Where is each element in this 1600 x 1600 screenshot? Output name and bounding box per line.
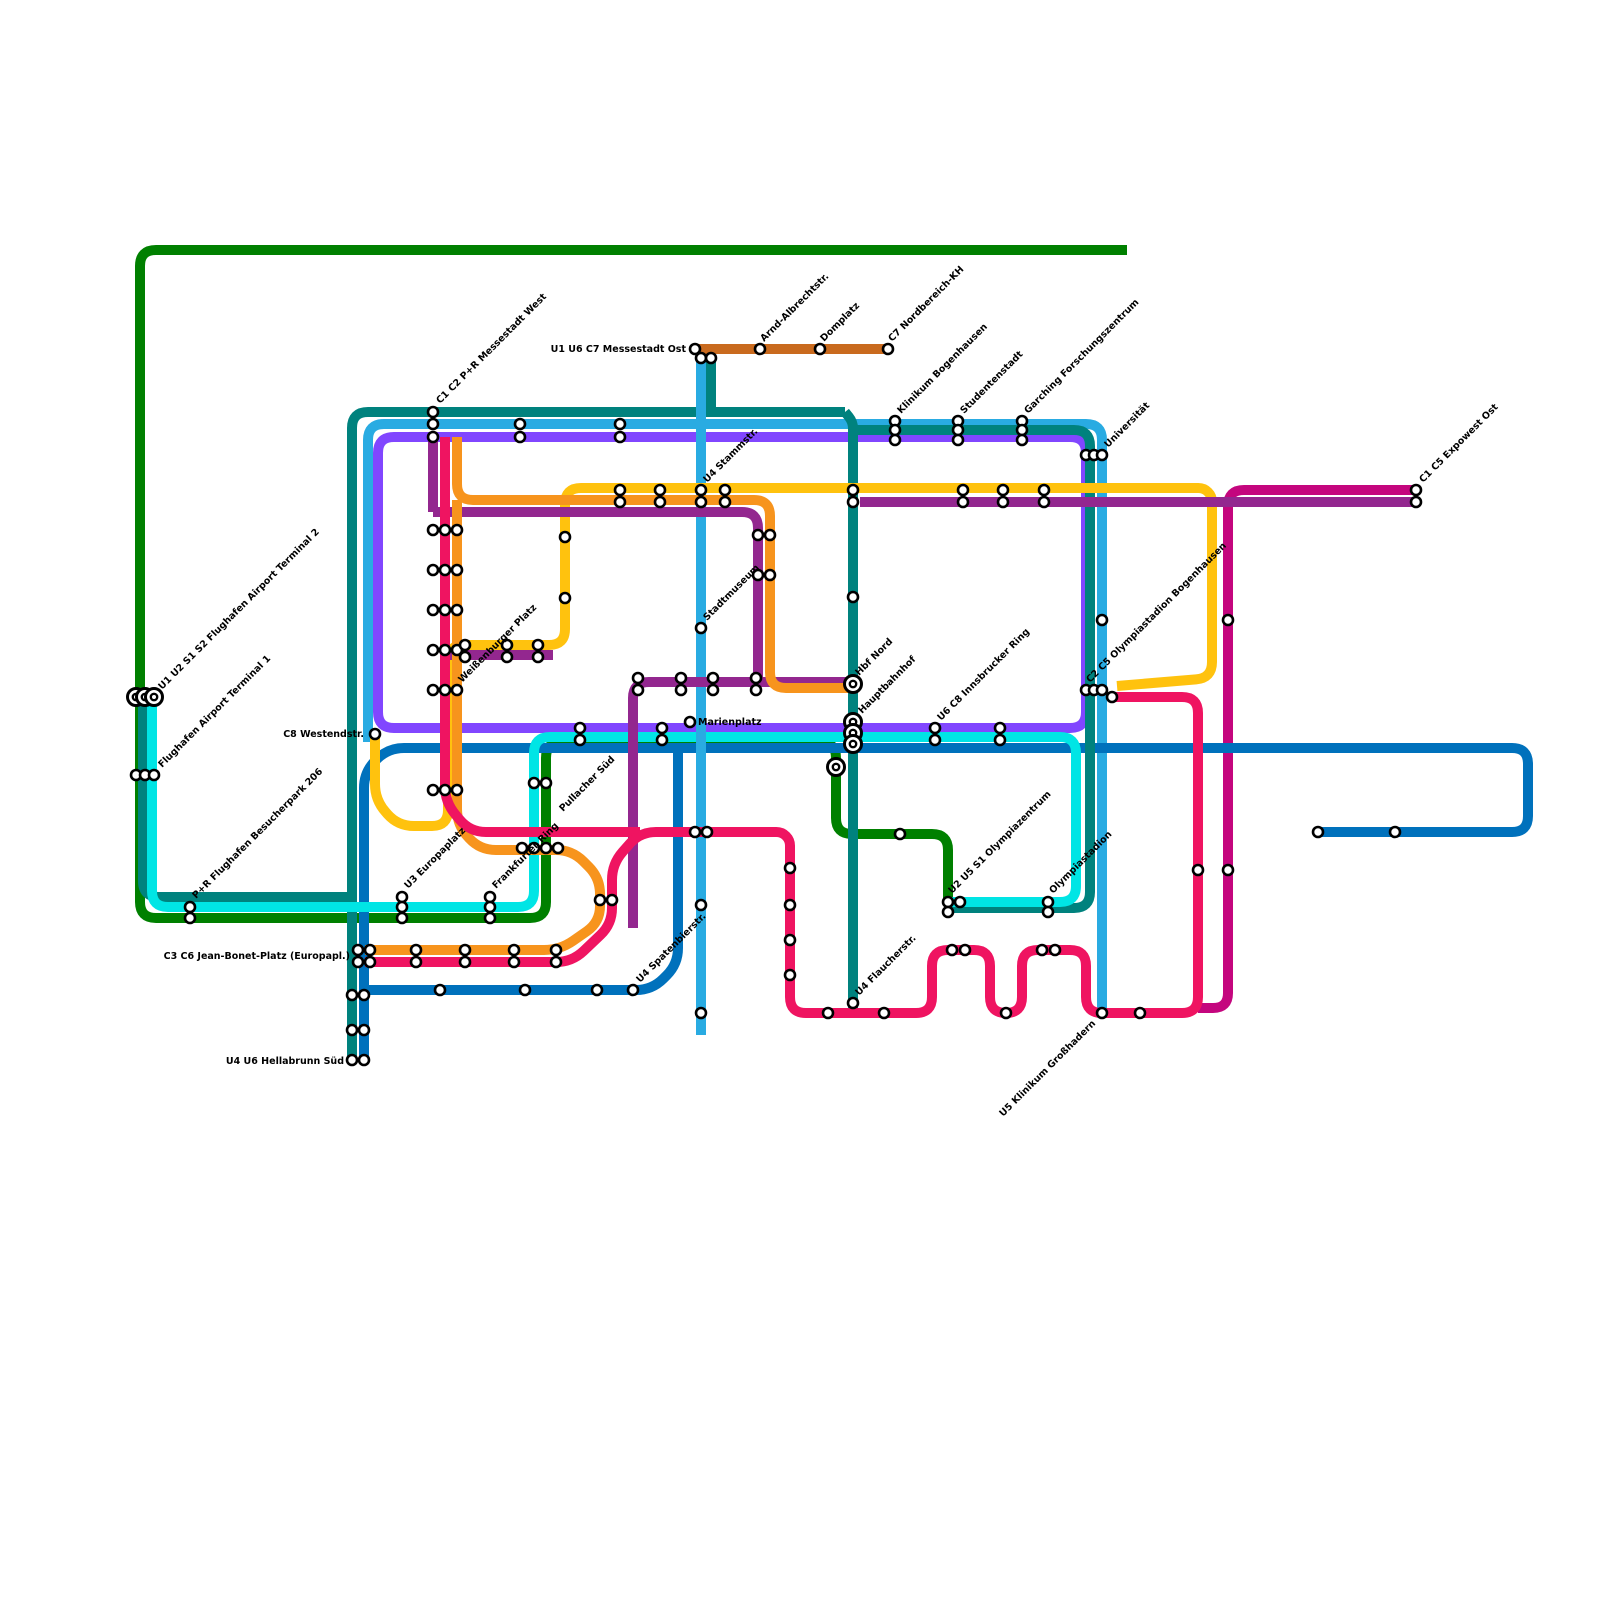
- station-marker: [1313, 827, 1323, 837]
- station-marker: [1039, 497, 1049, 507]
- station-marker: [460, 640, 470, 650]
- station-marker: [428, 645, 438, 655]
- station-marker: [1107, 692, 1117, 702]
- station-marker: [592, 985, 602, 995]
- station-marker: [708, 673, 718, 683]
- station-marker: [995, 723, 1005, 733]
- station-marker: [696, 497, 706, 507]
- station-marker: [397, 892, 407, 902]
- station-marker: [943, 897, 953, 907]
- station-marker: [848, 592, 858, 602]
- station-marker: [485, 892, 495, 902]
- station-marker: [365, 945, 375, 955]
- station-marker: [541, 778, 551, 788]
- station-marker: [575, 723, 585, 733]
- station-marker: [515, 419, 525, 429]
- transit-map: U1 U6 C7 Messestadt OstArnd-Albrechtstr.…: [0, 0, 1600, 1600]
- station-marker: [428, 419, 438, 429]
- station-marker: [1017, 425, 1027, 435]
- station-marker: [958, 497, 968, 507]
- interchange-marker: [828, 759, 845, 776]
- station-marker: [185, 902, 195, 912]
- station-marker: [452, 685, 462, 695]
- station-marker: [696, 1008, 706, 1018]
- station-marker: [1223, 865, 1233, 875]
- station-marker: [751, 673, 761, 683]
- station-marker: [440, 685, 450, 695]
- station-marker: [452, 565, 462, 575]
- station-marker: [1037, 945, 1047, 955]
- station-marker: [502, 652, 512, 662]
- station-label: C3 C6 Jean-Bonet-Platz (Europapl.): [164, 951, 350, 962]
- station-marker: [353, 957, 363, 967]
- station-marker: [1390, 827, 1400, 837]
- station-marker: [460, 957, 470, 967]
- station-marker: [440, 645, 450, 655]
- station-marker: [657, 723, 667, 733]
- station-marker: [370, 729, 380, 739]
- station-marker: [365, 957, 375, 967]
- station-marker: [428, 785, 438, 795]
- station-marker: [1039, 485, 1049, 495]
- station-marker: [823, 1008, 833, 1018]
- station-marker: [706, 353, 716, 363]
- station-marker: [452, 605, 462, 615]
- station-marker: [553, 843, 563, 853]
- station-marker: [696, 900, 706, 910]
- station-marker: [347, 990, 357, 1000]
- station-marker: [359, 1055, 369, 1065]
- transit-map-canvas: U1 U6 C7 Messestadt OstArnd-Albrechtstr.…: [0, 0, 1600, 1600]
- station-marker: [595, 895, 605, 905]
- station-marker: [509, 957, 519, 967]
- station-marker: [815, 344, 825, 354]
- station-marker: [696, 485, 706, 495]
- station-marker: [440, 785, 450, 795]
- station-marker: [890, 425, 900, 435]
- station-marker: [1043, 897, 1053, 907]
- station-marker: [1097, 1008, 1107, 1018]
- station-marker: [1193, 865, 1203, 875]
- station-marker: [785, 970, 795, 980]
- station-marker: [607, 895, 617, 905]
- station-marker: [690, 827, 700, 837]
- station-marker: [676, 673, 686, 683]
- station-marker: [998, 485, 1008, 495]
- station-marker: [696, 623, 706, 633]
- station-marker: [428, 565, 438, 575]
- station-marker: [560, 593, 570, 603]
- station-marker: [485, 913, 495, 923]
- station-marker: [785, 935, 795, 945]
- map-background: [0, 0, 1600, 1600]
- station-marker: [575, 735, 585, 745]
- station-marker: [751, 685, 761, 695]
- station-marker: [755, 344, 765, 354]
- station-marker: [953, 425, 963, 435]
- station-marker: [628, 985, 638, 995]
- station-marker: [347, 1025, 357, 1035]
- station-marker: [440, 525, 450, 535]
- station-marker: [615, 419, 625, 429]
- station-marker: [953, 435, 963, 445]
- station-marker: [765, 570, 775, 580]
- interchange-marker: [146, 689, 163, 706]
- station-marker: [1411, 497, 1421, 507]
- station-marker: [655, 497, 665, 507]
- station-marker: [676, 685, 686, 695]
- station-marker: [633, 685, 643, 695]
- station-marker: [533, 652, 543, 662]
- station-marker: [411, 945, 421, 955]
- station-marker: [485, 902, 495, 912]
- station-marker: [452, 785, 462, 795]
- station-marker: [529, 778, 539, 788]
- interchange-marker: [845, 676, 862, 693]
- station-marker: [520, 985, 530, 995]
- station-marker: [655, 485, 665, 495]
- station-marker: [428, 605, 438, 615]
- station-marker: [1050, 945, 1060, 955]
- station-marker: [1017, 435, 1027, 445]
- station-marker: [955, 897, 965, 907]
- interchange-marker: [845, 736, 862, 753]
- station-marker: [452, 525, 462, 535]
- station-marker: [1097, 685, 1107, 695]
- station-marker: [533, 640, 543, 650]
- station-marker: [998, 497, 1008, 507]
- station-marker: [1001, 1008, 1011, 1018]
- station-marker: [696, 353, 706, 363]
- station-marker: [930, 723, 940, 733]
- station-label: U1 U6 C7 Messestadt Ost: [551, 344, 687, 355]
- station-marker: [943, 907, 953, 917]
- station-marker: [1223, 615, 1233, 625]
- station-marker: [879, 1008, 889, 1018]
- station-marker: [440, 605, 450, 615]
- station-marker: [765, 530, 775, 540]
- station-marker: [702, 827, 712, 837]
- station-marker: [353, 945, 363, 955]
- station-marker: [720, 485, 730, 495]
- station-marker: [347, 1055, 357, 1065]
- station-marker: [1097, 615, 1107, 625]
- station-marker: [440, 565, 450, 575]
- station-marker: [785, 863, 795, 873]
- station-marker: [411, 957, 421, 967]
- station-marker: [428, 525, 438, 535]
- station-marker: [708, 685, 718, 695]
- station-marker: [848, 485, 858, 495]
- station-marker: [995, 735, 1005, 745]
- station-marker: [560, 532, 570, 542]
- station-marker: [753, 530, 763, 540]
- station-marker: [428, 685, 438, 695]
- station-marker: [720, 497, 730, 507]
- station-label: Marienplatz: [698, 717, 762, 728]
- station-marker: [359, 1025, 369, 1035]
- station-marker: [1097, 450, 1107, 460]
- station-marker: [428, 407, 438, 417]
- station-marker: [657, 735, 667, 745]
- station-marker: [848, 497, 858, 507]
- station-marker: [428, 432, 438, 442]
- station-marker: [615, 432, 625, 442]
- station-marker: [1411, 485, 1421, 495]
- station-marker: [890, 435, 900, 445]
- station-marker: [397, 902, 407, 912]
- station-marker: [149, 770, 159, 780]
- station-marker: [947, 945, 957, 955]
- station-marker: [895, 829, 905, 839]
- station-marker: [551, 957, 561, 967]
- station-marker: [460, 652, 470, 662]
- station-marker: [359, 990, 369, 1000]
- station-marker: [509, 945, 519, 955]
- station-marker: [185, 913, 195, 923]
- station-marker: [1135, 1008, 1145, 1018]
- station-marker: [551, 945, 561, 955]
- station-marker: [633, 673, 643, 683]
- station-marker: [615, 485, 625, 495]
- station-marker: [883, 344, 893, 354]
- station-marker: [685, 717, 695, 727]
- station-marker: [460, 945, 470, 955]
- station-marker: [930, 735, 940, 745]
- station-marker: [848, 998, 858, 1008]
- station-label: C8 Westendstr.: [283, 729, 364, 740]
- station-label: U4 U6 Hellabrunn Süd: [226, 1056, 344, 1067]
- station-marker: [435, 985, 445, 995]
- station-marker: [1043, 907, 1053, 917]
- station-marker: [615, 497, 625, 507]
- station-marker: [960, 945, 970, 955]
- station-marker: [785, 900, 795, 910]
- station-marker: [958, 485, 968, 495]
- station-marker: [515, 432, 525, 442]
- station-marker: [397, 913, 407, 923]
